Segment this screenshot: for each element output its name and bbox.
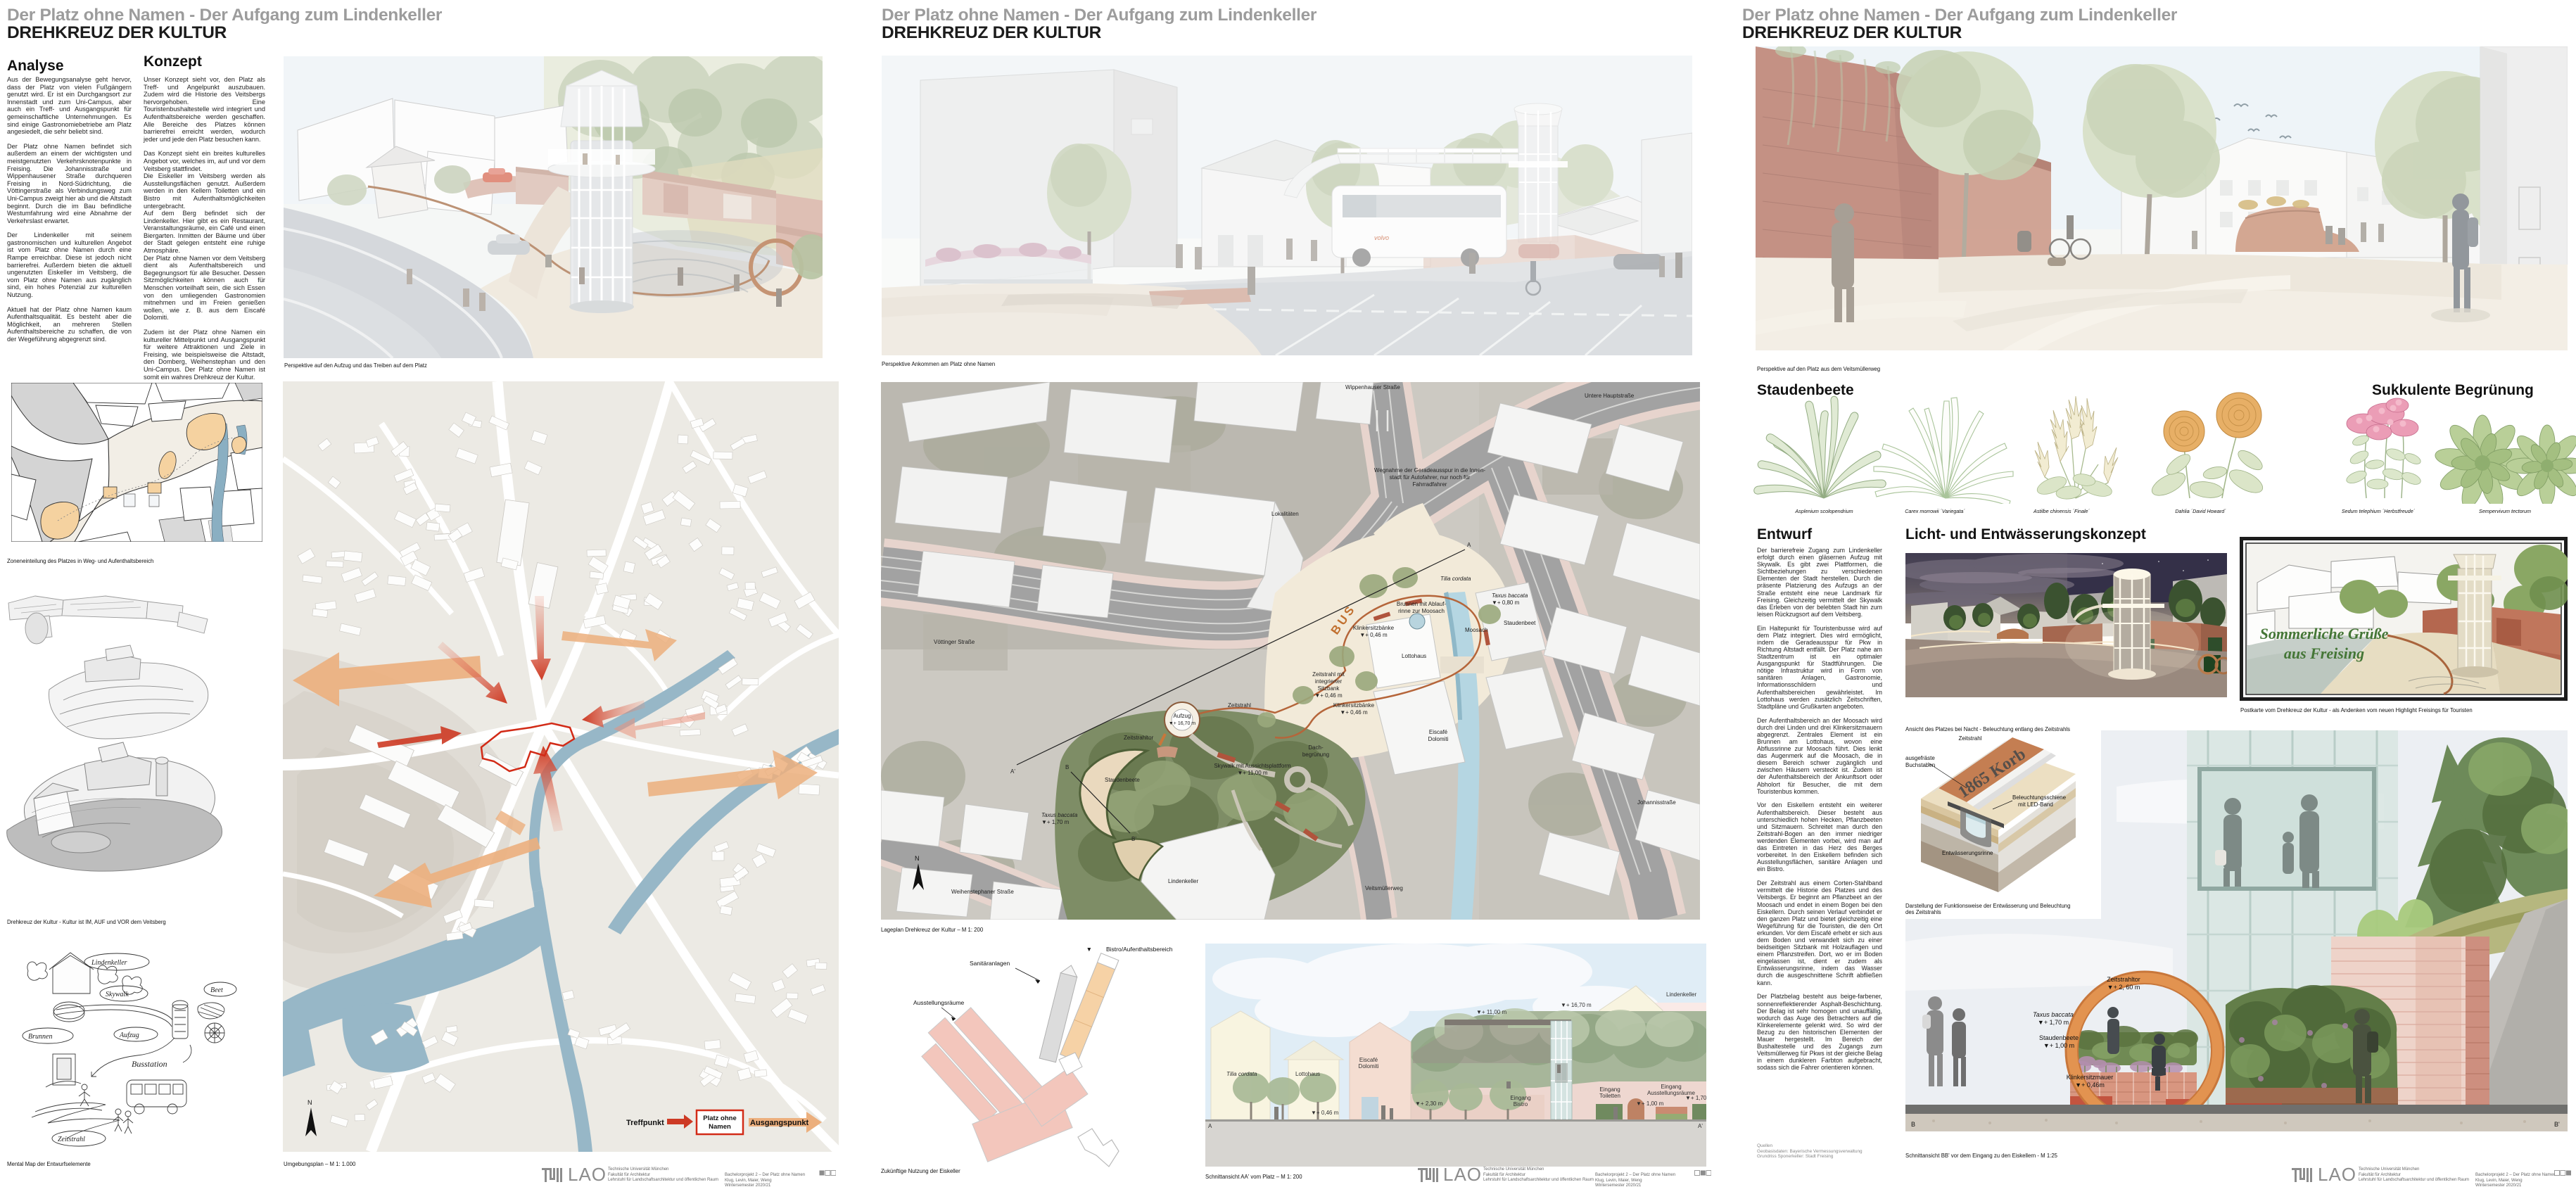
svg-text:Zeitstrahltor: Zeitstrahltor <box>1124 735 1154 741</box>
svg-text:▼+ 0,46 m: ▼+ 0,46 m <box>1314 692 1343 699</box>
svg-text:Klinkersitzbänke: Klinkersitzbänke <box>1353 625 1395 631</box>
svg-text:Lottohaus: Lottohaus <box>1402 653 1426 659</box>
svg-text:stadt für Autofahrer, nur noch: stadt für Autofahrer, nur noch für <box>1390 474 1471 481</box>
svg-text:▼+ 16,70 m: ▼+ 16,70 m <box>1169 721 1195 726</box>
svg-text:Johannisstraße: Johannisstraße <box>1637 799 1676 806</box>
svg-text:Skywalk mit Aussichtsplattform: Skywalk mit Aussichtsplattform <box>1214 763 1291 769</box>
svg-text:Moosach: Moosach <box>1465 627 1487 633</box>
svg-text:integrierter: integrierter <box>1315 678 1343 685</box>
svg-text:Taxus baccata: Taxus baccata <box>2033 1011 2074 1018</box>
svg-text:B': B' <box>1131 836 1136 842</box>
svg-text:Beet: Beet <box>210 986 223 994</box>
svg-text:Lindenkeller: Lindenkeller <box>1168 878 1198 884</box>
svg-text:Ausgangspunkt: Ausgangspunkt <box>750 1119 808 1127</box>
svg-text:Bistro/Aufenthaltsbereich: Bistro/Aufenthaltsbereich <box>1106 946 1173 953</box>
svg-text:Eiscafé: Eiscafé <box>1429 729 1448 735</box>
svg-text:begrünung: begrünung <box>1302 751 1329 758</box>
svg-text:Zeitstrahltor: Zeitstrahltor <box>2107 976 2140 983</box>
svg-text:Zeitstrahl: Zeitstrahl <box>1228 702 1251 709</box>
svg-text:▼+ 0,46m: ▼+ 0,46m <box>2075 1081 2105 1088</box>
svg-text:aus Freising: aus Freising <box>2284 645 2364 662</box>
svg-text:Klinkersitzmauer: Klinkersitzmauer <box>2067 1074 2114 1081</box>
svg-text:Staudenbeete: Staudenbeete <box>2039 1034 2079 1041</box>
svg-text:Aufzug: Aufzug <box>119 1032 139 1039</box>
svg-text:▼+ 11,00 m: ▼+ 11,00 m <box>1237 770 1267 776</box>
svg-text:Klinkersitzbänke: Klinkersitzbänke <box>1333 702 1375 709</box>
svg-text:Brunnen mit Ablauf-: Brunnen mit Ablauf- <box>1397 601 1447 607</box>
svg-text:▼+ 2, 60 m: ▼+ 2, 60 m <box>2107 984 2140 991</box>
svg-text:A': A' <box>1010 768 1015 775</box>
svg-text:N: N <box>307 1099 312 1106</box>
svg-text:Sitzbank: Sitzbank <box>1318 685 1340 692</box>
svg-text:rinne zur Moosach: rinne zur Moosach <box>1398 608 1445 614</box>
svg-text:Treffpunkt: Treffpunkt <box>626 1119 664 1127</box>
svg-text:Ausstellungsräume: Ausstellungsräume <box>913 999 965 1006</box>
svg-text:Brunnen: Brunnen <box>28 1033 52 1041</box>
svg-text:Vöttinger Straße: Vöttinger Straße <box>934 639 975 645</box>
svg-text:Platz ohne: Platz ohne <box>703 1115 737 1122</box>
svg-text:▼+ 1,00 m: ▼+ 1,00 m <box>2043 1042 2074 1049</box>
svg-text:B: B <box>1911 1121 1915 1128</box>
svg-text:Veitsmüllerweg: Veitsmüllerweg <box>1365 885 1403 891</box>
svg-text:Lokalitäten: Lokalitäten <box>1271 511 1299 517</box>
svg-text:B: B <box>1065 764 1069 770</box>
svg-text:N: N <box>915 855 920 862</box>
svg-text:▼+ 0,46 m: ▼+ 0,46 m <box>1359 632 1388 638</box>
svg-text:Untere Hauptstraße: Untere Hauptstraße <box>1585 393 1635 399</box>
svg-text:Dach-: Dach- <box>1308 744 1324 751</box>
svg-text:Dolomiti: Dolomiti <box>1428 736 1449 742</box>
svg-text:Sommerliche Grüße: Sommerliche Grüße <box>2260 625 2389 642</box>
svg-text:Namen: Namen <box>709 1123 731 1131</box>
svg-text:Taxus baccata: Taxus baccata <box>1492 592 1528 599</box>
svg-text:Staudenbeete: Staudenbeete <box>1105 777 1140 783</box>
svg-text:Fahrradfahrer: Fahrradfahrer <box>1413 481 1447 488</box>
svg-text:Wegnahme der Geradeausspur in: Wegnahme der Geradeausspur in die Innen- <box>1374 467 1486 474</box>
svg-text:Aufzug: Aufzug <box>1174 713 1191 719</box>
svg-text:Weihenstephaner Straße: Weihenstephaner Straße <box>951 889 1014 895</box>
svg-text:Taxus baccata: Taxus baccata <box>1041 812 1078 818</box>
svg-text:Tilia cordata: Tilia cordata <box>1440 576 1471 582</box>
svg-text:A: A <box>1467 542 1471 548</box>
svg-text:▼+ 0,46 m: ▼+ 0,46 m <box>1340 709 1368 716</box>
svg-text:Wippenhauser Straße: Wippenhauser Straße <box>1345 384 1400 391</box>
svg-text:Sanitäranlagen: Sanitäranlagen <box>970 960 1010 967</box>
svg-text:Lindenkeller: Lindenkeller <box>91 959 127 967</box>
svg-text:Busstation: Busstation <box>132 1059 167 1069</box>
svg-text:Staudenbeet: Staudenbeet <box>1504 620 1536 626</box>
svg-text:Skywalk: Skywalk <box>106 991 129 998</box>
svg-text:Zeitstrahl mit: Zeitstrahl mit <box>1312 671 1345 678</box>
svg-text:Zeitstrahl: Zeitstrahl <box>58 1136 85 1143</box>
svg-text:▼+ 1,70 m: ▼+ 1,70 m <box>2038 1019 2069 1026</box>
svg-text:▼: ▼ <box>1086 946 1092 953</box>
svg-text:▼+ 1,70 m: ▼+ 1,70 m <box>1041 819 1070 825</box>
svg-text:B': B' <box>2554 1121 2560 1128</box>
svg-text:▼+ 0,80 m: ▼+ 0,80 m <box>1492 599 1520 606</box>
